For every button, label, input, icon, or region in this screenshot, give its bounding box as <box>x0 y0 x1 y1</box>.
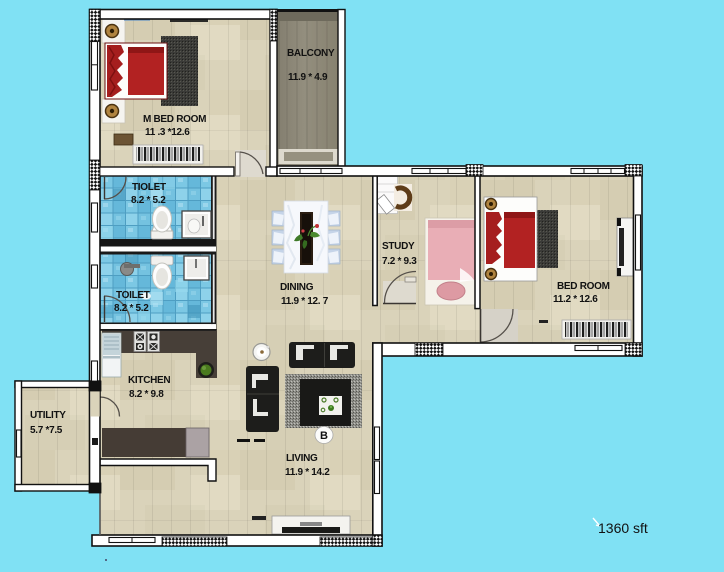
svg-text:LIVING: LIVING <box>286 453 318 464</box>
svg-text:BALCONY: BALCONY <box>287 48 335 59</box>
svg-text:11.9 * 12. 7: 11.9 * 12. 7 <box>281 296 329 307</box>
svg-text:8.2 * 5.2: 8.2 * 5.2 <box>131 195 166 206</box>
svg-text:M BED ROOM: M BED ROOM <box>143 114 206 125</box>
svg-text:TOILET: TOILET <box>116 290 150 301</box>
svg-text:8.2 * 9.8: 8.2 * 9.8 <box>129 389 164 400</box>
svg-text:8.2 * 5.2: 8.2 * 5.2 <box>114 303 149 314</box>
svg-text:UTILITY: UTILITY <box>30 410 66 421</box>
svg-text:11.2 * 12.6: 11.2 * 12.6 <box>553 294 598 305</box>
svg-text:11.9 * 14.2: 11.9 * 14.2 <box>285 467 330 478</box>
svg-text:1360 sft: 1360 sft <box>598 520 648 536</box>
svg-text:BED ROOM: BED ROOM <box>557 281 610 292</box>
svg-text:11 .3 *12.6: 11 .3 *12.6 <box>145 127 190 138</box>
svg-text:5.7 *7.5: 5.7 *7.5 <box>30 425 63 436</box>
svg-text:TIOLET: TIOLET <box>132 182 166 193</box>
svg-text:DINING: DINING <box>280 282 314 293</box>
svg-text:7.2 * 9.3: 7.2 * 9.3 <box>382 256 417 267</box>
svg-text:B: B <box>320 430 328 442</box>
svg-text:STUDY: STUDY <box>382 241 415 252</box>
svg-text:11.9 * 4.9: 11.9 * 4.9 <box>288 72 328 83</box>
svg-text:KITCHEN: KITCHEN <box>128 375 170 386</box>
